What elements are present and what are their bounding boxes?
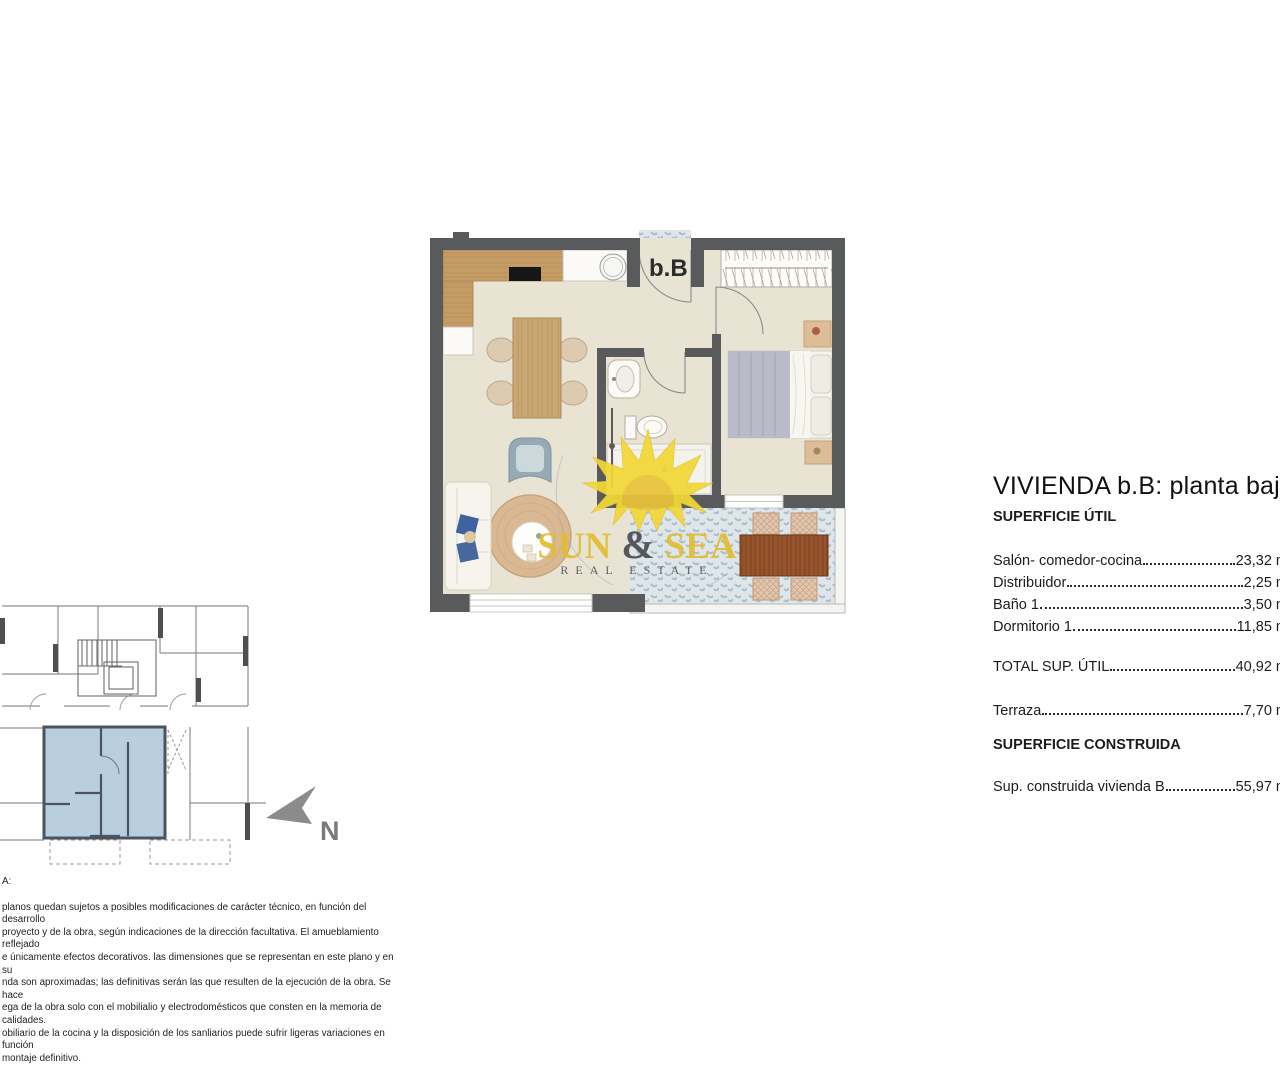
cooktop [509,267,541,281]
nightstand [805,441,832,464]
building-key-plan [0,578,270,883]
dotted-leader [1166,789,1235,791]
north-label: N [320,816,340,846]
toilet [625,416,667,439]
dotted-leader [1073,629,1236,631]
dotted-leader [1040,607,1243,609]
dotted-leader [1110,669,1234,671]
main-floor-plan: b.B [425,230,850,625]
pillow [811,355,831,393]
terrace-outlines [50,840,230,864]
useful-surface-heading: SUPERFICIE ÚTIL [993,509,1280,525]
room-value: 3,50 m [1244,597,1280,613]
sofa [445,482,491,590]
disclaimer-line: nda son aproximadas; las definitivas ser… [2,977,402,1002]
built-surface-row: Sup. construida vivienda B 55,97 m [993,773,1280,795]
disclaimer-note: A: planos quedan sujetos a posibles modi… [2,876,402,1065]
total-useful-row: TOTAL SUP. ÚTIL 40,92 m [993,653,1280,675]
surface-details-panel: VIVIENDA b.B: planta baj SUPERFICIE ÚTIL… [993,472,1280,795]
stair-core [78,640,156,696]
wardrobe [721,250,832,287]
highlighted-unit [44,727,165,838]
terrace-row: Terraza 7,70 m [993,697,1280,719]
dotted-leader [1042,713,1242,715]
measurement-row: Baño 1 3,50 m [993,591,1280,613]
room-value: 11,85 m [1237,619,1280,635]
disclaimer-line: planos quedan sujetos a posibles modific… [2,902,402,927]
unit-label: b.B [649,255,688,282]
total-label: TOTAL SUP. ÚTIL [993,659,1109,675]
dotted-leader [1067,585,1242,587]
disclaimer-line: montaje definitivo. [2,1053,402,1065]
sofa-pillow [456,540,479,563]
measurement-row: Dormitorio 1 11,85 m [993,613,1280,635]
room-value: 23,32 m [1236,553,1280,569]
living-window [470,594,592,612]
entrance-step [639,230,691,238]
disclaimer-line: obiliario de la cocina y la disposición … [2,1028,402,1053]
pillow [811,397,831,435]
floor-plan-page: { "main_plan": { "unit_label": "b.B" }, … [0,0,1280,1024]
armchair [509,438,551,482]
room-label: Dormitorio 1 [993,619,1072,635]
rug [489,495,571,577]
measurement-row: Distribuidor 2,25 m [993,569,1280,591]
dining-table [513,318,561,418]
room-label: Distribuidor [993,575,1066,591]
room-label: Baño 1 [993,597,1039,613]
nightstand [804,321,831,347]
built-label: Sup. construida vivienda B [993,779,1165,795]
disclaimer-line: proyecto y de la obra, según indicacione… [2,927,402,952]
stairs-hatch [168,730,186,774]
dotted-leader [1143,563,1234,565]
bed [728,351,832,438]
plan-title: VIVIENDA b.B: planta baj [993,472,1280,501]
disclaimer-line: e únicamente efectos decorativos. las di… [2,952,402,977]
measurement-row: Salón- comedor-cocina 23,32 m [993,547,1280,569]
room-label: Salón- comedor-cocina [993,553,1142,569]
room-measurements: Salón- comedor-cocina 23,32 m Distribuid… [993,547,1280,635]
terrace-label: Terraza [993,703,1041,719]
terrace-table [740,535,828,576]
room-value: 2,25 m [1244,575,1280,591]
built-surface-heading: SUPERFICIE CONSTRUIDA [993,737,1280,753]
north-arrow: N [258,778,368,856]
total-value: 40,92 m [1236,659,1280,675]
terrace-value: 7,70 m [1244,703,1280,719]
built-value: 55,97 m [1236,779,1280,795]
disclaimer-heading: A: [2,876,402,889]
north-arrow-icon [266,786,316,824]
